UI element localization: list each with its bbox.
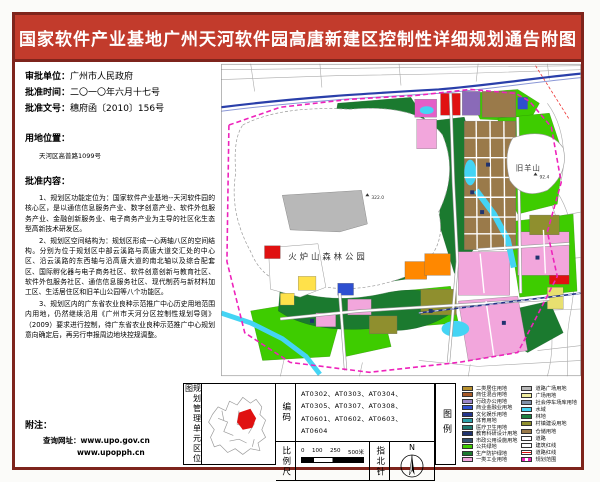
scale-north-row: 比例尺 0 100 250 500米 指北针 N — [276, 442, 435, 481]
planning-map-container: 火炉山森林公园 旧羊山 322.0 92.4 — [221, 62, 581, 378]
legend-label: 道路广场用地 — [535, 385, 566, 392]
legend-swatch — [521, 429, 532, 434]
legend-label: 道路 — [535, 435, 545, 442]
approval-doc-line: 批准文号：穗府函〔2010〕156号 — [25, 102, 215, 118]
legend-swatch — [521, 457, 532, 462]
code-scale-table: 编码 AT0302、AT0303、AT0304、AT0305、AT0307、AT… — [276, 383, 435, 465]
north-arrow-icon: N — [395, 442, 429, 480]
legend-item: 广场用地 — [521, 392, 577, 398]
unit-codes: AT0302、AT0303、AT0304、AT0305、AT0307、AT030… — [296, 383, 435, 442]
paragraph-2: 2、规划区空间结构为：规划区形成一心两轴八区的空间结构。分别为位于规划区中部云溪… — [25, 236, 215, 297]
scale-bar-cell: 0 100 250 500米 — [296, 442, 370, 481]
location-inset-cell — [202, 383, 276, 465]
institution-block — [282, 190, 367, 232]
map-label-peak2: 92.4 — [539, 174, 549, 180]
legend-item: 村镇建设用地 — [521, 421, 577, 427]
location-inset-map — [204, 386, 274, 462]
legend-label: 规划范围 — [535, 456, 556, 463]
legend-title: 图例 — [441, 409, 450, 439]
legend-label: 林地 — [535, 413, 545, 420]
legend-swatch — [521, 414, 532, 419]
legend-title-cell: 图例 — [435, 383, 456, 465]
map-label-peak1: 322.0 — [371, 195, 384, 201]
approval-date-line: 批准时间：二〇一〇年六月十七号 — [25, 86, 215, 102]
scale-label: 比例尺 — [281, 446, 290, 478]
page-frame: 国家软件产业基地广州天河软件园高唐新建区控制性详细规划通告附图 审批单位：广州市… — [12, 12, 584, 470]
approval-doc-value: 穗府函〔2010〕156号 — [70, 104, 164, 114]
approval-unit-value: 广州市人民政府 — [70, 72, 133, 82]
content-area: 审批单位：广州市人民政府 批准时间：二〇一〇年六月十七号 批准文号：穗府函〔20… — [15, 62, 581, 467]
legend-item: 道路 — [521, 435, 577, 441]
legend-column-left: 二类居住用地商住混合用地行政办公用地商业金融业用地文化娱乐用地体育用地医疗卫生用… — [462, 385, 518, 463]
legend-swatch — [521, 443, 532, 448]
legend-swatch — [462, 451, 473, 456]
legend-swatch — [521, 436, 532, 441]
code-row: 编码 AT0302、AT0303、AT0304、AT0305、AT0307、AT… — [276, 383, 435, 442]
legend-column-right: 道路广场用地广场用地社会停车场库用地水域林地村镇建设用地仓储用地道路建筑红线道路… — [521, 385, 577, 463]
approval-unit-label: 审批单位： — [25, 72, 70, 82]
legend-swatch — [462, 405, 473, 410]
content-heading: 批准内容： — [25, 174, 215, 187]
legend-swatch — [521, 400, 532, 405]
scale-bar — [301, 457, 364, 463]
legend-item: 道路广场用地 — [521, 385, 577, 391]
legend-item: 建筑红线 — [521, 443, 577, 449]
legend-swatch — [462, 438, 473, 443]
legend-list: 二类居住用地商住混合用地行政办公用地商业金融业用地文化娱乐用地体育用地医疗卫生用… — [456, 383, 579, 465]
legend-swatch — [521, 450, 532, 455]
north-label-cell: 指北针 — [370, 442, 390, 481]
scale-tick-500: 500米 — [348, 448, 364, 456]
legend-swatch — [462, 399, 473, 404]
approval-date-label: 批准时间： — [25, 88, 70, 98]
legend-item: 一类工业用地 — [462, 457, 518, 463]
legend-swatch — [462, 392, 473, 397]
page-title: 国家软件产业基地广州天河软件园高唐新建区控制性详细规划通告附图 — [19, 25, 577, 50]
inset-highlight-area — [237, 409, 256, 430]
code-label-cell: 编码 — [276, 383, 296, 442]
unit-map-title-cell: 规划管理单元区位图 — [183, 383, 202, 465]
code-label: 编码 — [281, 402, 290, 423]
legend-item: 道路红线 — [521, 450, 577, 456]
north-label: 指北针 — [375, 446, 384, 478]
paragraph-1: 1、规划区功能定位为：国家软件产业基地--天河软件园的核心区，是以通信信息服务产… — [25, 193, 215, 234]
planning-map: 火炉山森林公园 旧羊山 322.0 92.4 — [221, 62, 581, 378]
scale-ticks: 0 100 250 500米 — [301, 448, 364, 456]
scale-tick-0: 0 — [301, 448, 305, 456]
legend-label: 仓储用地 — [535, 428, 556, 435]
legend-swatch — [462, 457, 473, 462]
map-label-park: 火炉山森林公园 — [288, 252, 368, 262]
approval-paragraphs: 1、规划区功能定位为：国家软件产业基地--天河软件园的核心区，是以通信信息服务产… — [25, 191, 215, 342]
legend-swatch — [462, 431, 473, 436]
legend-label: 一类工业用地 — [476, 456, 507, 463]
unit-map-title: 规划管理单元区位图 — [185, 384, 201, 464]
legend-swatch — [462, 425, 473, 430]
legend-label: 水域 — [535, 406, 545, 413]
approval-doc-label: 批准文号： — [25, 104, 70, 114]
legend-label: 村镇建设用地 — [535, 420, 566, 427]
approval-date-value: 二〇一〇年六月十七号 — [70, 88, 160, 98]
location-value: 天河区高普路1099号 — [39, 150, 215, 160]
scale-label-cell: 比例尺 — [276, 442, 296, 481]
paragraph-3: 3、规划区内的广东省农业良种示范推广中心历史用地范围内用地，仍然继续沿用《广州市… — [25, 299, 215, 340]
approval-unit-line: 审批单位：广州市人民政府 — [25, 70, 215, 86]
legend-label: 社会停车场库用地 — [535, 399, 577, 406]
scale-tick-250: 250 — [330, 448, 341, 456]
legend-swatch — [521, 407, 532, 412]
legend-item: 规划范围 — [521, 457, 577, 463]
legend-swatch — [521, 393, 532, 398]
footer-strip: 规划管理单元区位图 编码 AT0302、AT0303、AT0304、AT0305 — [183, 383, 579, 465]
legend-label: 道路红线 — [535, 449, 556, 456]
legend-swatch — [521, 421, 532, 426]
legend-item: 社会停车场库用地 — [521, 399, 577, 405]
map-label-hill: 旧羊山 — [516, 163, 541, 173]
location-heading: 用地位置： — [25, 131, 215, 144]
legend-swatch — [521, 386, 532, 391]
legend-swatch — [462, 412, 473, 417]
legend-swatch — [462, 386, 473, 391]
legend-label: 广场用地 — [535, 392, 556, 399]
title-banner: 国家软件产业基地广州天河软件园高唐新建区控制性详细规划通告附图 — [15, 15, 581, 62]
scale-tick-100: 100 — [312, 448, 323, 456]
legend-swatch — [462, 444, 473, 449]
legend-item: 仓储用地 — [521, 428, 577, 434]
legend-item: 水域 — [521, 407, 577, 413]
legend-item: 林地 — [521, 414, 577, 420]
north-arrow-cell: N — [390, 442, 435, 481]
legend-label: 建筑红线 — [535, 442, 556, 449]
legend-swatch — [462, 418, 473, 423]
north-n-letter: N — [409, 443, 415, 452]
